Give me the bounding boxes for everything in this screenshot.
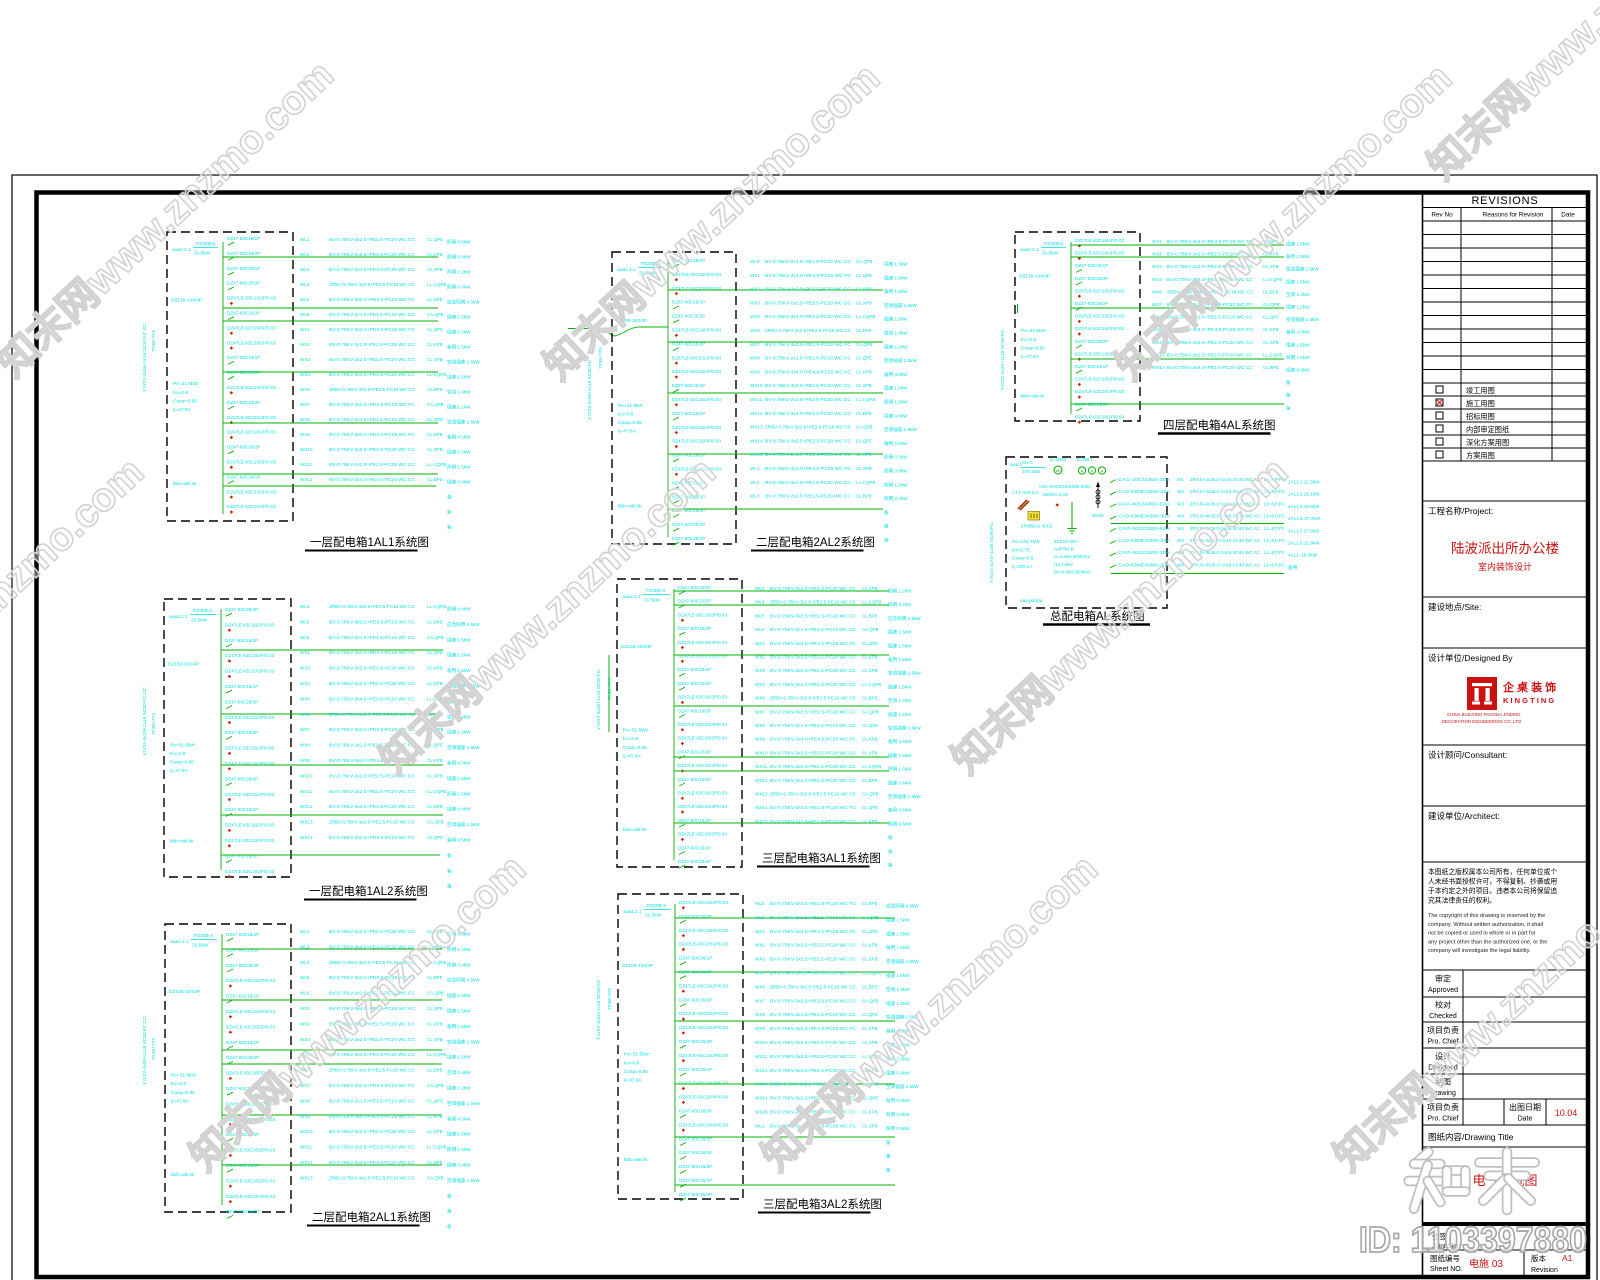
svg-text:WX9: WX9 — [300, 1114, 310, 1119]
svg-text:WX4: WX4 — [755, 971, 765, 976]
svg-text:WX1: WX1 — [1152, 239, 1162, 244]
svg-text:方案用图: 方案用图 — [1466, 451, 1495, 460]
svg-text:ZRBV-0.75KV-3x2.5+PE2.5-PC16 W: ZRBV-0.75KV-3x2.5+PE2.5-PC16 WC CC — [329, 1068, 416, 1073]
svg-text:DZ47LE-63C16/4P/0.03: DZ47LE-63C16/4P/0.03 — [678, 804, 727, 809]
svg-text:照明 1.2kW: 照明 1.2kW — [884, 482, 908, 488]
svg-text:DZ47LE-63C16/2P/0.03: DZ47LE-63C16/2P/0.03 — [678, 832, 727, 837]
svg-text:DZ158-100/4P: DZ158-100/4P — [621, 644, 652, 650]
svg-text:LL-2,QPB: LL-2,QPB — [862, 600, 881, 605]
svg-text:WX1: WX1 — [755, 929, 765, 934]
svg-text:BV-0.75KV-2x1.5+PE1.5-PC16 WC: BV-0.75KV-2x1.5+PE1.5-PC16 WC CC — [329, 1098, 416, 1103]
svg-text:CA,QPB: CA,QPB — [427, 820, 444, 825]
svg-text:DZ47LE-63C16/2P/0.03: DZ47LE-63C16/2P/0.03 — [672, 328, 721, 333]
svg-text:LL-2,QPB: LL-2,QPB — [856, 314, 875, 319]
svg-text:WX4: WX4 — [750, 314, 760, 319]
svg-text:BV-0.75KV-2x2.5+PE2.5-PC20 WC: BV-0.75KV-2x2.5+PE2.5-PC20 WC CC — [329, 681, 416, 686]
svg-text:WX8: WX8 — [300, 1098, 310, 1103]
svg-text:LL-2,QPB: LL-2,QPB — [427, 604, 446, 609]
svg-text:CA,QPB: CA,QPB — [427, 635, 444, 640]
svg-text:插座 1.5kW: 插座 1.5kW — [884, 316, 908, 323]
svg-text:BV-0.75KV-2x1.5+PE1.5-PC16 WC: BV-0.75KV-2x1.5+PE1.5-PC16 WC CC — [770, 723, 857, 728]
svg-text:ZRBV-0.75KV-3x2.5+PE2.5-PC16 W: ZRBV-0.75KV-3x2.5+PE2.5-PC16 WC CC — [329, 820, 416, 825]
svg-text:备用 4.5kW: 备用 4.5kW — [888, 738, 912, 745]
svg-text:CL,QPE: CL,QPE — [862, 929, 878, 934]
svg-text:DZ47-60C20/2P: DZ47-60C20/2P — [226, 1055, 259, 1060]
svg-text:DZ47-60C25/2P: DZ47-60C25/2P — [679, 1192, 712, 1197]
svg-text:CL,BPE: CL,BPE — [856, 328, 872, 333]
svg-text:备: 备 — [447, 883, 452, 890]
svg-text:Wh: Wh — [1055, 469, 1060, 473]
svg-text:插座 1.2kW: 插座 1.2kW — [884, 343, 908, 350]
svg-text:知末网www.znzmo.com: 知末网www.znzmo.com — [536, 56, 888, 389]
svg-text:WX2: WX2 — [750, 287, 760, 292]
svg-text:BV-0.75KV-2x1.5+PE1.5-PC16 WC: BV-0.75KV-2x1.5+PE1.5-PC16 WC CC — [770, 915, 857, 920]
svg-text:Dr=4.5kV,35/4kVA: Dr=4.5kV,35/4kVA — [1054, 569, 1092, 574]
svg-text:-aaa1.2.1: -aaa1.2.1 — [622, 909, 642, 914]
svg-text:DZ47-60C16/1P: DZ47-60C16/1P — [226, 1040, 259, 1045]
svg-text:WX13: WX13 — [755, 1082, 768, 1087]
svg-text:DZ47-60C16/2P: DZ47-60C16/2P — [227, 400, 260, 405]
svg-text:陆波派出所办公楼: 陆波派出所办公楼 — [1451, 541, 1559, 556]
svg-text:WX3: WX3 — [300, 681, 310, 686]
svg-text:CA,QPB: CA,QPB — [1263, 302, 1280, 307]
svg-text:BV-0.75KV-3x4.0+PE4.0-PC20 WC: BV-0.75KV-3x4.0+PE4.0-PC20 WC CC — [329, 267, 416, 272]
svg-text:BV-0.75KV-2x1.5+PE1.5-PC16 WC: BV-0.75KV-2x1.5+PE1.5-PC16 WC CC — [765, 452, 852, 457]
svg-text:一层配电箱1AL1系统图: 一层配电箱1AL1系统图 — [310, 535, 429, 549]
svg-text:DZ47-60C16/1P: DZ47-60C16/1P — [1075, 364, 1108, 369]
svg-text:CL,QPE: CL,QPE — [856, 438, 872, 443]
svg-text:W3: W3 — [1177, 501, 1184, 506]
svg-text:1AL1.2 28.1kW: 1AL1.2 28.1kW — [1288, 492, 1320, 497]
svg-text:WX12: WX12 — [300, 804, 313, 809]
svg-text:空调插座 1.5kW: 空调插座 1.5kW — [886, 958, 919, 965]
svg-text:CL,BPE: CL,BPE — [1263, 365, 1279, 370]
svg-text:备用 4.5kW: 备用 4.5kW — [1286, 329, 1310, 336]
svg-text:BV-0.75KV-3x4.0+PE4.0-PC25 WC: BV-0.75KV-3x4.0+PE4.0-PC25 WC FC — [770, 929, 857, 934]
svg-text:空调 1.4kW: 空调 1.4kW — [1286, 291, 1310, 298]
svg-text:WX5: WX5 — [750, 328, 760, 333]
svg-text:BV-0.75KV-3x2.5+PE2.5-PC20 WC: BV-0.75KV-3x2.5+PE2.5-PC20 WC FC — [770, 613, 857, 618]
svg-text:插座 0.4kW: 插座 0.4kW — [1286, 367, 1310, 374]
svg-text:CL,KPB: CL,KPB — [862, 737, 878, 742]
svg-text:31.5kW: 31.5kW — [645, 913, 662, 919]
svg-text:插座 1.2kW: 插座 1.2kW — [888, 711, 912, 718]
svg-text:LL-2,QPB: LL-2,QPB — [427, 1052, 446, 1057]
svg-text:CL,BPE: CL,BPE — [1263, 289, 1279, 294]
svg-text:DZ47-60C16/2P: DZ47-60C16/2P — [226, 1209, 259, 1214]
svg-text:WX14: WX14 — [750, 438, 763, 443]
svg-text:WX12: WX12 — [300, 477, 313, 482]
svg-text:WL6: WL6 — [755, 915, 765, 920]
svg-text:CL,KPB: CL,KPB — [856, 287, 872, 292]
svg-text:L1=8,P,PC: L1=8,P,PC — [1264, 562, 1285, 567]
svg-text:LL-2,QPB: LL-2,QPB — [427, 462, 446, 467]
svg-text:插座 0.4kW: 插座 0.4kW — [888, 779, 912, 786]
svg-text:31.5kW: 31.5kW — [192, 943, 209, 949]
svg-text:DZ47LE-63C16/2P/0.03: DZ47LE-63C16/2P/0.03 — [672, 425, 721, 430]
svg-text:DZ47LE-63C16/4P/0.03: DZ47LE-63C16/4P/0.03 — [227, 325, 276, 330]
svg-text:350mA 0.3S: 350mA 0.3S — [1043, 492, 1068, 497]
svg-text:DZ47-60C20/1P: DZ47-60C20/1P — [679, 1178, 712, 1183]
svg-text:BV-0.75KV-3x4.0+PE4.0-PC25 WC: BV-0.75KV-3x4.0+PE4.0-PC25 WC FC — [770, 641, 857, 646]
svg-text:bbb=wbl.bk: bbb=wbl.bk — [173, 481, 197, 486]
svg-text:WX13: WX13 — [755, 792, 768, 797]
svg-text:备: 备 — [447, 524, 452, 531]
svg-text:BV-0.75KV-3x2.5+PE2.5-PC20 WC: BV-0.75KV-3x2.5+PE2.5-PC20 WC CC — [329, 666, 416, 671]
svg-text:L1=8,P,PC: L1=8,P,PC — [1264, 526, 1285, 531]
svg-text:DZ47-60C20/1P: DZ47-60C20/1P — [226, 947, 259, 952]
svg-text:空调插座 1.5kW: 空调插座 1.5kW — [888, 670, 921, 677]
svg-text:应急照明 4.5kW: 应急照明 4.5kW — [447, 299, 480, 306]
svg-text:BV-0.75KV-2x2.5+PE2.5-PC20 WC: BV-0.75KV-2x2.5+PE2.5-PC20 WC CC — [329, 252, 416, 257]
svg-text:DZ47-60C25/2P: DZ47-60C25/2P — [227, 281, 260, 286]
svg-text:WX5: WX5 — [300, 712, 310, 717]
svg-text:WX7: WX7 — [300, 402, 310, 407]
svg-text:Kx=0.8: Kx=0.8 — [170, 751, 185, 757]
svg-text:bbb=wbl.bk: bbb=wbl.bk — [1021, 393, 1045, 398]
svg-text:WL3: WL3 — [300, 944, 310, 949]
svg-text:T#38+7#3: T#38+7#3 — [607, 988, 613, 1010]
svg-text:插座 1.5kW: 插座 1.5kW — [447, 374, 471, 381]
svg-text:BV-0.75KV-3x4.0+PE4.0-PC20 WC: BV-0.75KV-3x4.0+PE4.0-PC20 WC CC — [765, 314, 852, 319]
svg-text:知末网www.znzmo.com: 知末网www.znzmo.com — [944, 450, 1296, 783]
svg-text:BV-0.75KV-2x2.5+PE2.5-PC20 WC: BV-0.75KV-2x2.5+PE2.5-PC20 WC CC — [765, 300, 852, 305]
svg-text:3AL1.5 21.8kW: 3AL1.5 21.8kW — [1288, 541, 1320, 546]
svg-text:Cosφ=0.85: Cosφ=0.85 — [624, 1069, 648, 1075]
svg-text:备: 备 — [447, 494, 452, 501]
svg-text:Pe=31.5kW: Pe=31.5kW — [171, 1073, 196, 1079]
svg-text:WX15: WX15 — [755, 1110, 768, 1115]
svg-text:内部审定图纸: 内部审定图纸 — [1466, 425, 1509, 434]
svg-text:WX3: WX3 — [755, 668, 765, 673]
svg-text:WX9: WX9 — [300, 758, 310, 763]
svg-text:空调插座 1.5kW: 空调插座 1.5kW — [447, 821, 480, 828]
svg-text:应急照明 4.5kW: 应急照明 4.5kW — [886, 903, 919, 910]
svg-text:备用 0.5kW: 备用 0.5kW — [888, 807, 912, 814]
svg-text:BV-0.75KV-3x2.5+PE2.5-PC20 WC: BV-0.75KV-3x2.5+PE2.5-PC20 WC CC — [765, 383, 852, 388]
svg-text:DZ47-60C16/1P: DZ47-60C16/1P — [679, 1150, 712, 1155]
svg-text:设计顾问/Consultant:: 设计顾问/Consultant: — [1428, 750, 1507, 760]
svg-text:DZ47-60C16/2P: DZ47-60C16/2P — [679, 1164, 712, 1169]
svg-text:备: 备 — [447, 509, 452, 516]
svg-text:PZ30B-X: PZ30B-X — [646, 588, 666, 594]
svg-text:BV-0.75KV-3x2.5+PE2.5-PC20 WC: BV-0.75KV-3x2.5+PE2.5-PC20 WC FC — [765, 342, 852, 347]
svg-text:CL,XPB: CL,XPB — [427, 357, 443, 362]
svg-text:DZ47LE-63C16/4P/0.03: DZ47LE-63C16/4P/0.03 — [227, 504, 276, 509]
svg-text:Pe=31.5kW: Pe=31.5kW — [173, 381, 198, 387]
svg-text:BV-0.75KV-3x2.5+PE2.5-PC20 WC: BV-0.75KV-3x2.5+PE2.5-PC20 WC CC — [770, 943, 857, 948]
svg-text:CL,KPB: CL,KPB — [862, 655, 878, 660]
svg-text:DZ47LE-63C16/4P/0.03: DZ47LE-63C16/4P/0.03 — [1075, 238, 1124, 243]
svg-text:BV-0.75KV-3x4.0+PE4.0-PC25 WC: BV-0.75KV-3x4.0+PE4.0-PC25 WC FC — [765, 273, 852, 278]
svg-text:T#38+7#3: T#38+7#3 — [151, 1038, 157, 1060]
svg-text:CA,QPB: CA,QPB — [427, 1083, 444, 1088]
svg-text:DZ47-60C20/2P: DZ47-60C20/2P — [227, 370, 260, 375]
svg-text:WX4: WX4 — [1152, 277, 1162, 282]
svg-text:照明 0.8kW: 照明 0.8kW — [884, 469, 908, 475]
svg-text:DZ47-60C20/2P: DZ47-60C20/2P — [1075, 339, 1108, 344]
svg-text:插座 1.5kW: 插座 1.5kW — [447, 329, 471, 336]
svg-text:于本约定之外的项目。违者本公司将保留追: 于本约定之外的项目。违者本公司将保留追 — [1428, 886, 1557, 895]
svg-text:DZ47-60C16/1P: DZ47-60C16/1P — [672, 300, 705, 305]
svg-text:插座 1.5kW: 插座 1.5kW — [884, 261, 908, 268]
svg-text:DZ47-60C16/1P: DZ47-60C16/1P — [679, 1067, 712, 1072]
svg-text:CL,KPB: CL,KPB — [862, 1110, 878, 1115]
svg-text:插座 1.2kW: 插座 1.2kW — [1286, 304, 1310, 311]
svg-text:BV-0.75KV-2x2.5+PE2.5-PC20 WC: BV-0.75KV-2x2.5+PE2.5-PC20 WC CC — [765, 397, 852, 402]
svg-text:BV-0.75KV-2x2.5+PE2.5-PC20 WC: BV-0.75KV-2x2.5+PE2.5-PC20 WC CC — [329, 929, 416, 934]
svg-text:本图纸之版权属本公司所有，任何单位或个: 本图纸之版权属本公司所有，任何单位或个 — [1428, 867, 1557, 876]
svg-text:备: 备 — [1286, 392, 1291, 399]
svg-text:DZ47LE-63C16/2P/0.03: DZ47LE-63C16/2P/0.03 — [678, 612, 727, 617]
svg-text:WX8: WX8 — [300, 417, 310, 422]
svg-text:Date: Date — [1561, 212, 1575, 219]
svg-text:DZ47LE-63C16/2P/0.03: DZ47LE-63C16/2P/0.03 — [225, 869, 274, 874]
svg-text:DZ47LE-63C16/4P/0.03: DZ47LE-63C16/4P/0.03 — [672, 439, 721, 444]
svg-text:Checked: Checked — [1429, 1013, 1457, 1020]
svg-text:CL,BPE: CL,BPE — [427, 619, 443, 624]
svg-text:CA0-63NE/4300-30A: CA0-63NE/4300-30A — [1118, 514, 1171, 519]
svg-text:BV-0.75KV-2x1.5+PE1.5-PC16 WC: BV-0.75KV-2x1.5+PE1.5-PC16 WC CC — [770, 627, 857, 632]
svg-text:建设地点/Site:: 建设地点/Site: — [1428, 602, 1481, 612]
svg-text:知末网www.znzmo.com: 知末网www.znzmo.com — [0, 53, 342, 386]
svg-text:CA,QPB: CA,QPB — [856, 342, 873, 347]
svg-text:二层配电箱2AL2系统图: 二层配电箱2AL2系统图 — [756, 535, 875, 549]
svg-text:Approved: Approved — [1428, 987, 1458, 994]
svg-text:-aaa1.2.1: -aaa1.2.1 — [1019, 247, 1039, 252]
svg-text:DZ47LE-63C16/4P/0.03: DZ47LE-63C16/4P/0.03 — [678, 640, 727, 645]
svg-text:DZ47LE-63C16/2P/0.03: DZ47LE-63C16/2P/0.03 — [672, 369, 721, 374]
svg-text:备: 备 — [886, 1153, 891, 1160]
svg-text:WX1: WX1 — [300, 327, 310, 332]
svg-text:D=4kWh: D=4kWh — [1050, 457, 1067, 462]
svg-text:WL2: WL2 — [300, 929, 310, 934]
svg-text:BV-0.75KV-3x4.0+PE4.0-PC20 WC: BV-0.75KV-3x4.0+PE4.0-PC20 WC CC — [329, 477, 416, 482]
svg-text:照明 0.4kW: 照明 0.4kW — [884, 496, 908, 502]
svg-text:LL-2,QPB: LL-2,QPB — [427, 1145, 446, 1150]
svg-text:照明 1.5kW: 照明 1.5kW — [1286, 355, 1310, 361]
svg-text:ZRBV-0.75KV-3x2.5+PE2.5-PC16 W: ZRBV-0.75KV-3x2.5+PE2.5-PC16 WC CC — [329, 282, 416, 287]
svg-text:备用 0.5kW: 备用 0.5kW — [884, 440, 908, 447]
svg-text:照明 0.4kW: 照明 0.4kW — [447, 607, 471, 613]
svg-text:WL4: WL4 — [755, 600, 765, 605]
svg-text:CL,BPE: CL,BPE — [862, 613, 878, 618]
svg-text:PZ30B-X: PZ30B-X — [193, 608, 213, 614]
svg-text:Cosφ=0.8: Cosφ=0.8 — [1012, 556, 1033, 562]
svg-text:Kx=0.8: Kx=0.8 — [1021, 337, 1036, 343]
svg-text:WX14: WX14 — [300, 835, 313, 840]
svg-text:照明 0.5kW: 照明 0.5kW — [886, 1112, 910, 1118]
svg-text:DZ47-60C16/1P: DZ47-60C16/1P — [226, 1163, 259, 1168]
svg-text:BV-0.75KV-3x2.5+PE2.5-PC20 WC: BV-0.75KV-3x2.5+PE2.5-PC20 WC FC — [329, 297, 416, 302]
svg-text:CL,QPE: CL,QPE — [1263, 315, 1279, 320]
svg-text:WX5: WX5 — [755, 984, 765, 989]
svg-text:376.1kW: 376.1kW — [1022, 469, 1041, 474]
svg-text:DZ47-60C25/2P: DZ47-60C25/2P — [226, 963, 259, 968]
svg-text:四层配电箱4AL系统图: 四层配电箱4AL系统图 — [1163, 418, 1275, 432]
svg-text:BV-0.75KV-3x2.5+PE2.5-PC20 WC: BV-0.75KV-3x2.5+PE2.5-PC20 WC FC — [770, 901, 857, 906]
svg-text:BV-0.75KV-2x2.5+PE2.5-PC20 WC: BV-0.75KV-2x2.5+PE2.5-PC20 WC CC — [770, 668, 857, 673]
svg-text:DZ47-60C16/1P: DZ47-60C16/1P — [678, 667, 711, 672]
svg-text:CA,QPB: CA,QPB — [856, 259, 873, 264]
svg-text:WX10: WX10 — [300, 773, 313, 778]
svg-text:审定: 审定 — [1435, 974, 1451, 984]
svg-text:YJV22-4x35+1x16 SC50 FC: YJV22-4x35+1x16 SC50 FC — [596, 979, 602, 1040]
svg-text:DZ47-60C25/2P: DZ47-60C25/2P — [678, 599, 711, 604]
svg-text:照明 0.4kW: 照明 0.4kW — [447, 962, 471, 968]
svg-text:L1=8,P,PC: L1=8,P,PC — [1264, 538, 1285, 543]
svg-text:ZRBV-0.75KV-3x2.5+PE2.5-PC16 W: ZRBV-0.75KV-3x2.5+PE2.5-PC16 WC CC — [770, 984, 857, 989]
svg-text:备: 备 — [447, 1192, 452, 1199]
svg-text:WX9: WX9 — [300, 432, 310, 437]
svg-text:DZ47LE-63C16/4P/0.03: DZ47LE-63C16/4P/0.03 — [226, 1194, 275, 1199]
svg-text:WX11: WX11 — [300, 462, 313, 467]
svg-text:WX7: WX7 — [755, 709, 765, 714]
svg-text:CL,KPB: CL,KPB — [427, 432, 443, 437]
svg-text:DZ47LE-63C20/2P/0.03: DZ47LE-63C20/2P/0.03 — [226, 1024, 275, 1029]
svg-text:空调插座 1.5kW: 空调插座 1.5kW — [447, 1038, 480, 1045]
svg-text:人未经书面授权许可，不得复制、抄袭或用: 人未经书面授权许可，不得复制、抄袭或用 — [1428, 877, 1557, 886]
svg-text:插座 0.4kW: 插座 0.4kW — [447, 479, 471, 486]
svg-text:Sheet NO.: Sheet NO. — [1430, 1266, 1463, 1273]
svg-text:CA,QPB: CA,QPB — [862, 792, 879, 797]
svg-text:图纸内容/Drawing Title: 图纸内容/Drawing Title — [1428, 1132, 1514, 1142]
svg-text:ZRBV-0.75KV-3x2.5+PE2.5-PC16 W: ZRBV-0.75KV-3x2.5+PE2.5-PC16 WC CC — [329, 387, 416, 392]
svg-text:CA0-40C/4300-63A: CA0-40C/4300-63A — [1118, 526, 1171, 531]
svg-text:BV-0.75KV-3x4.0+PE4.0-PC20 WC: BV-0.75KV-3x4.0+PE4.0-PC20 WC CC — [329, 1160, 416, 1165]
svg-text:WX2: WX2 — [755, 655, 765, 660]
svg-text:备用 4.5kW: 备用 4.5kW — [447, 1115, 471, 1122]
svg-text:aaa.pbl.jba: aaa.pbl.jba — [1020, 598, 1043, 603]
svg-text:LL-2,QPB: LL-2,QPB — [862, 764, 881, 769]
svg-text:DZ47LE-63C16/4P/0.03: DZ47LE-63C16/4P/0.03 — [1075, 389, 1124, 394]
svg-text:BV-0.75KV-2x1.5+PE1.5-PC16 WC: BV-0.75KV-2x1.5+PE1.5-PC16 WC CC — [770, 1012, 857, 1017]
svg-text:2AL1.E 27.7kW: 2AL1.E 27.7kW — [1288, 516, 1321, 521]
svg-text:Pe=131.7kW: Pe=131.7kW — [1012, 539, 1040, 545]
svg-text:照明 0.4kW: 照明 0.4kW — [447, 285, 471, 291]
svg-text:DZ47LE-63C16/2P/0.03: DZ47LE-63C16/2P/0.03 — [678, 791, 727, 796]
svg-text:CT1-A50.1/4: CT1-A50.1/4 — [1012, 490, 1038, 495]
svg-text:DZ47LE-63C16/2P/0.03: DZ47LE-63C16/2P/0.03 — [679, 1122, 728, 1127]
svg-text:Ij=47.8A: Ij=47.8A — [618, 429, 637, 435]
svg-text:DZ47-60C16/1P: DZ47-60C16/1P — [679, 956, 712, 961]
svg-text:BV-0.75KV-3x4.0+PE4.0-PC20 WC: BV-0.75KV-3x4.0+PE4.0-PC20 WC CC — [770, 586, 857, 591]
svg-text:4AL1. 19.3kW: 4AL1. 19.3kW — [1288, 553, 1318, 558]
svg-text:CL,KPB: CL,KPB — [427, 252, 443, 257]
svg-text:ZRBV-0.75KV-3x2.5+PE2.5-PC16 W: ZRBV-0.75KV-3x2.5+PE2.5-PC16 WC CC — [329, 604, 416, 609]
svg-text:10.04: 10.04 — [1555, 1108, 1578, 1118]
svg-text:插座 0.4kW: 插座 0.4kW — [884, 412, 908, 419]
svg-text:设计单位/Designed By: 设计单位/Designed By — [1428, 653, 1513, 663]
svg-text:YJV22-4x35+1x16 SC50 FC CC: YJV22-4x35+1x16 SC50 FC CC — [142, 1016, 148, 1085]
svg-text:照明 1.2kW: 照明 1.2kW — [888, 589, 912, 595]
svg-text:备用 1.5kW: 备用 1.5kW — [888, 656, 912, 663]
svg-text:Kx=0.8: Kx=0.8 — [618, 411, 633, 417]
svg-text:ID: 1103397880: ID: 1103397880 — [1359, 1219, 1587, 1260]
svg-text:DZ47LE-63C20/2P/0.03: DZ47LE-63C20/2P/0.03 — [679, 942, 728, 947]
svg-text:CL,KPB: CL,KPB — [862, 1026, 878, 1031]
svg-text:备用 0.5kW: 备用 0.5kW — [886, 1097, 910, 1104]
svg-text:LL-2,QPB: LL-2,QPB — [862, 682, 881, 687]
svg-text:DZ158-100/4P: DZ158-100/4P — [622, 963, 653, 969]
svg-text:AaP7M-B: AaP7M-B — [1054, 547, 1074, 552]
svg-text:L1=8,P,PC: L1=8,P,PC — [1264, 550, 1285, 555]
svg-text:Pe=31.5kW: Pe=31.5kW — [623, 728, 648, 734]
svg-text:CL,BPE: CL,BPE — [862, 778, 878, 783]
svg-text:DZ47-60C16/2P: DZ47-60C16/2P — [225, 730, 258, 735]
svg-text:WL2: WL2 — [300, 252, 310, 257]
svg-text:bbb=wbl.bk: bbb=wbl.bk — [171, 1172, 195, 1177]
svg-text:The copyright of this drawing: The copyright of this drawing is reserve… — [1428, 913, 1545, 919]
svg-text:A: A — [1101, 470, 1104, 474]
svg-text:CA1-40C/4300-30A: CA1-40C/4300-30A — [1118, 477, 1171, 482]
svg-text:二层配电箱2AL1系统图: 二层配电箱2AL1系统图 — [312, 1210, 431, 1224]
svg-text:Cosφ=0.85: Cosφ=0.85 — [618, 420, 642, 426]
svg-text:DZ47-60C20/2P: DZ47-60C20/2P — [225, 776, 258, 781]
svg-text:CA0-63NE/4300-32A: CA0-63NE/4300-32A — [1118, 538, 1171, 543]
svg-text:备: 备 — [886, 1167, 891, 1174]
svg-text:DZ47-60C16/2P: DZ47-60C16/2P — [226, 932, 259, 937]
svg-text:YJV22-4x35+1x16 SC50 FC CC: YJV22-4x35+1x16 SC50 FC CC — [142, 687, 148, 756]
svg-text:空调插座 1.5kW: 空调插座 1.5kW — [447, 1177, 480, 1184]
svg-text:DZ47LE-63C16/2P/0.03: DZ47LE-63C16/2P/0.03 — [227, 296, 276, 301]
svg-text:插座 1.5kW: 插座 1.5kW — [447, 1008, 471, 1015]
svg-text:WX2: WX2 — [300, 1021, 310, 1026]
svg-text:备用 4.5kW: 备用 4.5kW — [447, 434, 471, 441]
svg-text:YJV22-4x25+1x16 SC50 FC: YJV22-4x25+1x16 SC50 FC — [1000, 329, 1006, 390]
svg-text:ZRBV-0.75KV-3x2.5+PE2.5-PC16 W: ZRBV-0.75KV-3x2.5+PE2.5-PC16 WC CC — [770, 792, 857, 797]
svg-text:DZ47LE-63C20/2P/0.03: DZ47LE-63C20/2P/0.03 — [678, 654, 727, 659]
svg-text:BV-0.75KV-3x4.0+PE4.0-PC20 WC: BV-0.75KV-3x4.0+PE4.0-PC20 WC CC — [765, 411, 852, 416]
svg-text:WX9: WX9 — [755, 737, 765, 742]
svg-text:LL-2,QPB: LL-2,QPB — [856, 397, 875, 402]
svg-text:备用 4.5kW: 备用 4.5kW — [447, 760, 471, 767]
svg-text:知末网www.znzmo.com: 知末网www.znzmo.com — [0, 450, 152, 783]
svg-text:备: 备 — [888, 848, 893, 855]
svg-text:CL,XPB: CL,XPB — [427, 1129, 443, 1134]
svg-text:备: 备 — [888, 862, 893, 869]
svg-text:Ij=230.1A: Ij=230.1A — [1012, 564, 1033, 570]
svg-text:DZ47LE-63C16/4P/0.03: DZ47LE-63C16/4P/0.03 — [226, 1009, 275, 1014]
svg-text:Pe=31.5kW: Pe=31.5kW — [170, 742, 195, 748]
svg-text:BV-0.75KV-3x4.0+PE4.0-PC20 WC: BV-0.75KV-3x4.0+PE4.0-PC20 WC CC — [770, 778, 857, 783]
svg-text:CL,XPB: CL,XPB — [862, 668, 878, 673]
svg-text:DZ47LE-63C25/2P/0.03: DZ47LE-63C25/2P/0.03 — [1075, 314, 1124, 319]
svg-text:CL,BPE: CL,BPE — [862, 696, 878, 701]
svg-text:BV-0.75KV-3x2.5+PE2.5-PC20 WC: BV-0.75KV-3x2.5+PE2.5-PC20 WC CC — [765, 480, 852, 485]
svg-text:CL,QPE: CL,QPE — [862, 1012, 878, 1017]
svg-text:BV-0.75KV-2x2.5+PE2.5-PC20 WC: BV-0.75KV-2x2.5+PE2.5-PC20 WC CC — [329, 789, 416, 794]
svg-text:WL6: WL6 — [300, 635, 310, 640]
svg-text:KH-C: KH-C — [1022, 460, 1034, 465]
svg-text:工程名称/Project:: 工程名称/Project: — [1428, 506, 1493, 516]
svg-text:K I N G T I N G: K I N G T I N G — [1503, 696, 1554, 705]
svg-text:DZ47LE-63C16/2P/0.03: DZ47LE-63C16/2P/0.03 — [679, 1053, 728, 1058]
svg-text:空调插座 1.5kW: 空调插座 1.5kW — [884, 357, 917, 364]
svg-text:Cosφ=0.85: Cosφ=0.85 — [170, 760, 194, 766]
svg-text:WL1: WL1 — [755, 1123, 765, 1128]
svg-text:CL,KPB: CL,KPB — [862, 819, 878, 824]
svg-text:Pro. Chief: Pro. Chief — [1427, 1116, 1458, 1123]
svg-text:LL-2,QPB: LL-2,QPB — [427, 372, 446, 377]
svg-text:备用 1.5kW: 备用 1.5kW — [447, 1023, 471, 1030]
svg-text:CHINA BUILDING PAGODA JINDING: CHINA BUILDING PAGODA JINDING — [1447, 712, 1521, 717]
svg-text:BV-0.75KV-3x2.5+PE2.5-PC20 WC: BV-0.75KV-3x2.5+PE2.5-PC20 WC CC — [770, 1040, 857, 1045]
svg-text:CL,QPE: CL,QPE — [862, 805, 878, 810]
svg-text:空调 1.4kW: 空调 1.4kW — [888, 697, 912, 704]
svg-text:Ij=47.8A: Ij=47.8A — [171, 1098, 190, 1104]
svg-text:DZ47LE-63C16/2P/0.03: DZ47LE-63C16/2P/0.03 — [227, 489, 276, 494]
